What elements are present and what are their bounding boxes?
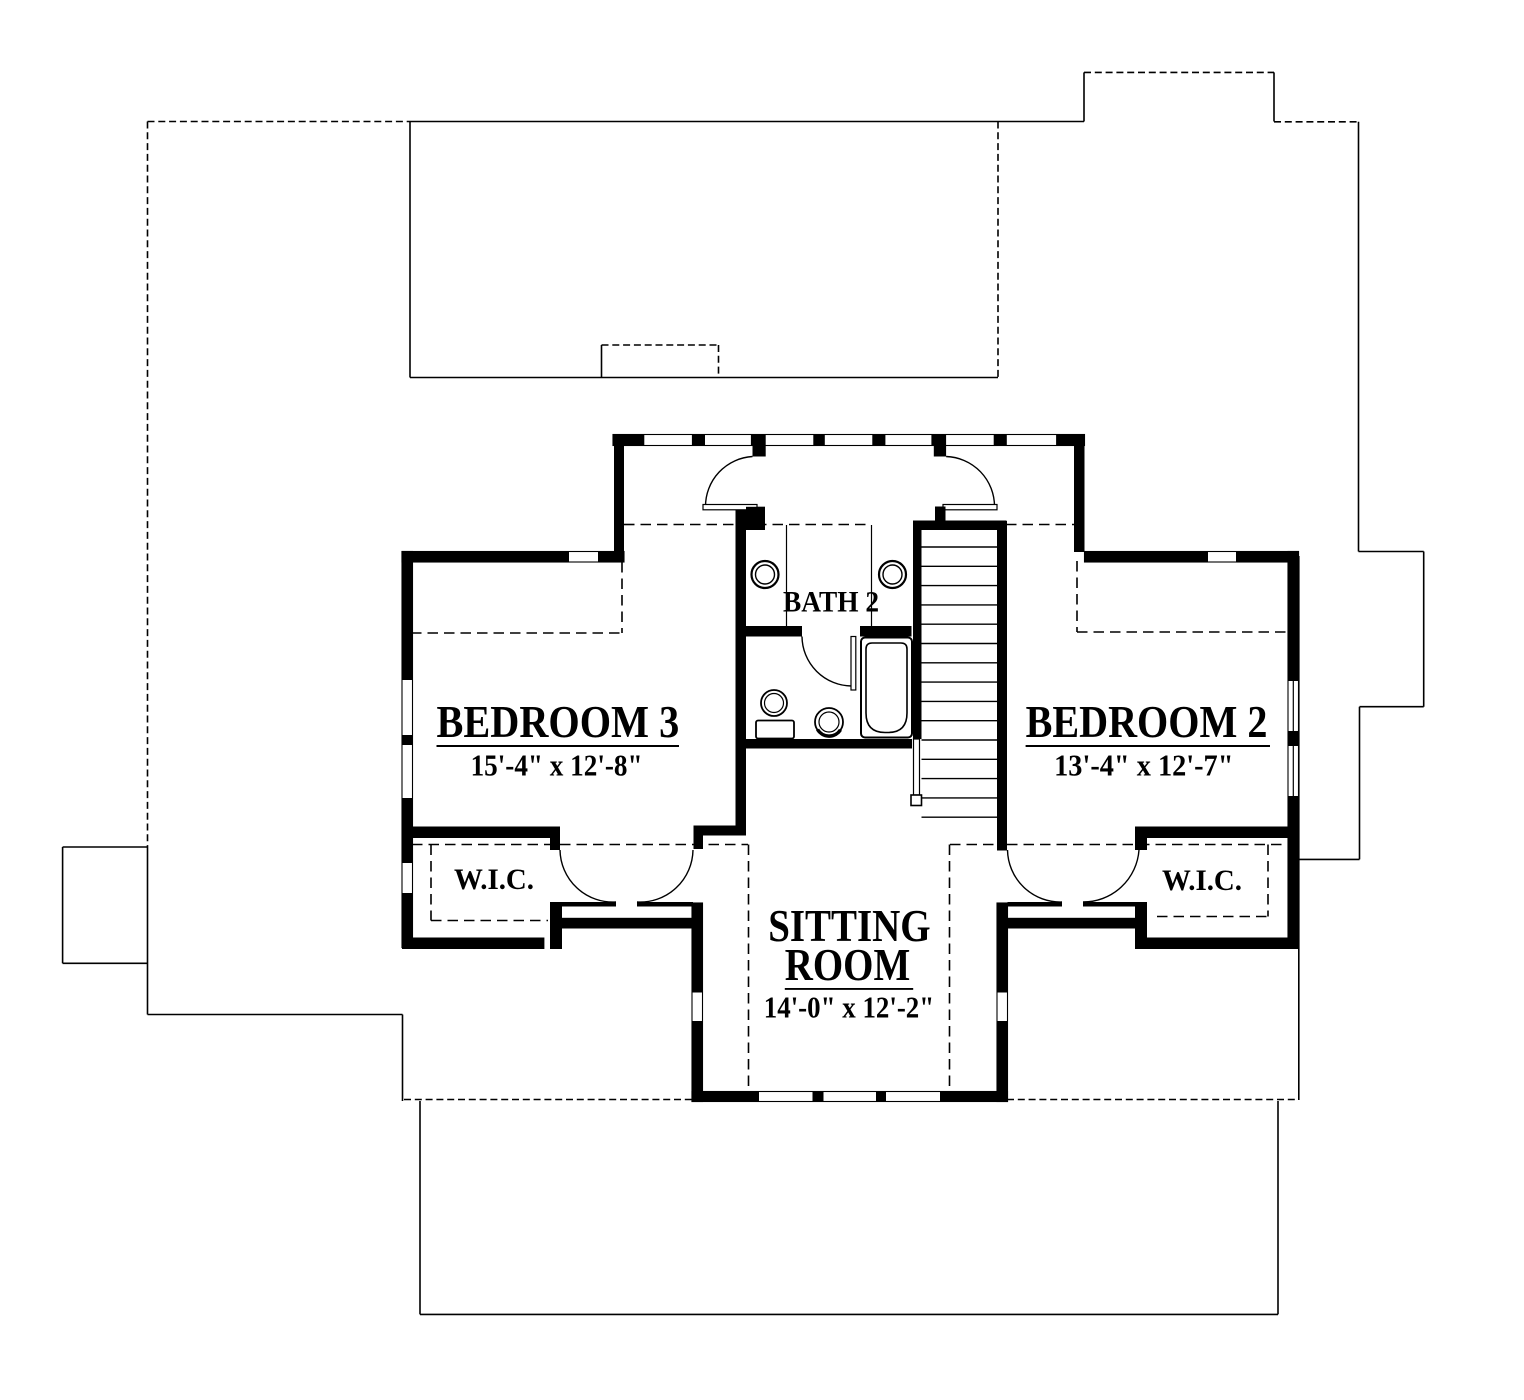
svg-text:15'-4" x 12'-8": 15'-4" x 12'-8"	[471, 749, 643, 783]
svg-text:ROOM: ROOM	[785, 939, 911, 990]
svg-text:BEDROOM 2: BEDROOM 2	[1026, 696, 1268, 747]
svg-text:W.I.C.: W.I.C.	[454, 863, 534, 896]
svg-text:W.I.C.: W.I.C.	[1162, 864, 1242, 897]
svg-text:BEDROOM 3: BEDROOM 3	[437, 696, 680, 747]
svg-text:BATH 2: BATH 2	[783, 586, 879, 619]
svg-text:13'-4" x 12'-7": 13'-4" x 12'-7"	[1054, 749, 1233, 783]
svg-text:14'-0" x 12'-2": 14'-0" x 12'-2"	[764, 991, 934, 1025]
